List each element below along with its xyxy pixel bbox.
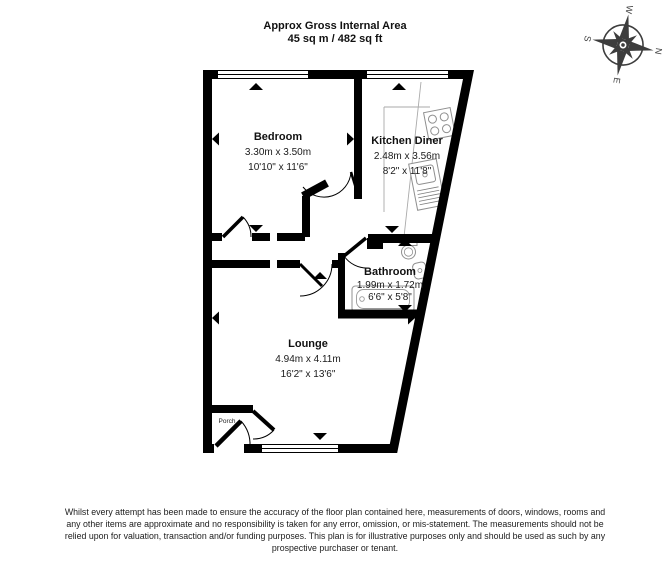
disclaimer-line-3: relied upon for valuation, transaction a… [0, 530, 670, 542]
svg-text:Lounge: Lounge [288, 338, 328, 350]
svg-text:Kitchen Diner: Kitchen Diner [371, 135, 443, 147]
compass-icon: N E S W [576, 0, 670, 91]
compass-e: E [611, 77, 622, 85]
arrow-kitchen-down [385, 226, 399, 233]
svg-text:3.30m x 3.50m: 3.30m x 3.50m [245, 147, 311, 158]
lounge-door [300, 264, 332, 296]
svg-text:8'2" x 11'8": 8'2" x 11'8" [383, 166, 432, 177]
svg-text:Bathroom: Bathroom [364, 266, 416, 278]
svg-text:2.48m x 3.56m: 2.48m x 3.56m [374, 151, 440, 162]
window-kitchen [367, 70, 448, 80]
doors [216, 172, 368, 446]
window-lounge [262, 444, 338, 454]
bathroom-door [344, 238, 368, 268]
arrow-bedroom-left [212, 133, 219, 146]
svg-text:10'10" x 11'6": 10'10" x 11'6" [248, 162, 308, 173]
svg-text:Bedroom: Bedroom [254, 131, 303, 143]
svg-text:4.94m x 4.11m: 4.94m x 4.11m [275, 354, 340, 365]
porch-label: Porch [219, 418, 236, 425]
porch-door [253, 411, 274, 439]
kitchen-door [303, 172, 358, 197]
disclaimer-line-2: any other items are approximate and no r… [0, 518, 670, 530]
svg-text:6'6" x 5'8": 6'6" x 5'8" [368, 292, 412, 303]
floor-plan-svg: N E S W [0, 0, 670, 500]
duct-block [367, 238, 383, 249]
bedroom-door [223, 217, 251, 237]
arrow-bedroom-down [249, 225, 263, 232]
compass-s: S [582, 35, 593, 43]
arrow-lounge-up [313, 272, 327, 279]
disclaimer: Whilst every attempt has been made to en… [0, 506, 670, 554]
floor-plan-page: Approx Gross Internal Area 45 sq m / 482… [0, 0, 670, 564]
window-bedroom [218, 70, 308, 80]
arrow-bedroom-right [347, 133, 354, 146]
arrow-bedroom-up [249, 83, 263, 90]
compass-n: N [653, 47, 664, 55]
disclaimer-line-1: Whilst every attempt has been made to en… [0, 506, 670, 518]
lounge-label: Lounge 4.94m x 4.11m 16'2" x 13'6" [275, 338, 340, 380]
bedroom-label: Bedroom 3.30m x 3.50m 10'10" x 11'6" [245, 131, 311, 173]
svg-text:16'2" x 13'6": 16'2" x 13'6" [281, 369, 336, 380]
compass-w: W [624, 4, 635, 15]
disclaimer-line-4: prospective purchaser or tenant. [0, 542, 670, 554]
arrow-lounge-left [212, 312, 219, 325]
arrow-lounge-down [313, 433, 327, 440]
arrow-kitchen-up [392, 83, 406, 90]
svg-text:1.99m x 1.72m: 1.99m x 1.72m [357, 280, 423, 291]
